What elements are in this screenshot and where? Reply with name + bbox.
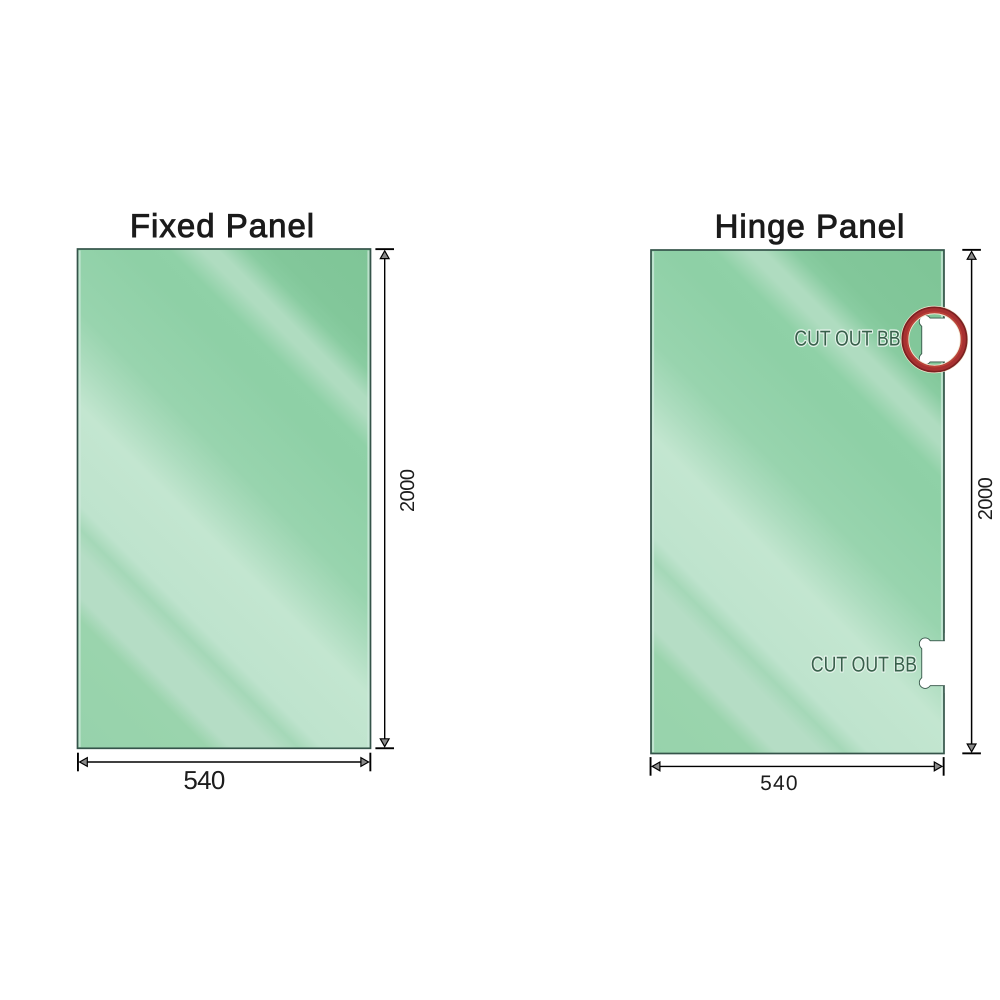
- svg-text:2000: 2000: [975, 477, 997, 520]
- svg-text:540: 540: [760, 772, 799, 795]
- svg-text:CUT OUT BB: CUT OUT BB: [794, 327, 900, 351]
- svg-text:Hinge Panel: Hinge Panel: [715, 208, 906, 245]
- svg-text:CUT OUT BB: CUT OUT BB: [811, 653, 917, 677]
- svg-text:Fixed Panel: Fixed Panel: [130, 207, 315, 244]
- svg-text:2000: 2000: [397, 469, 419, 512]
- svg-text:540: 540: [183, 765, 225, 795]
